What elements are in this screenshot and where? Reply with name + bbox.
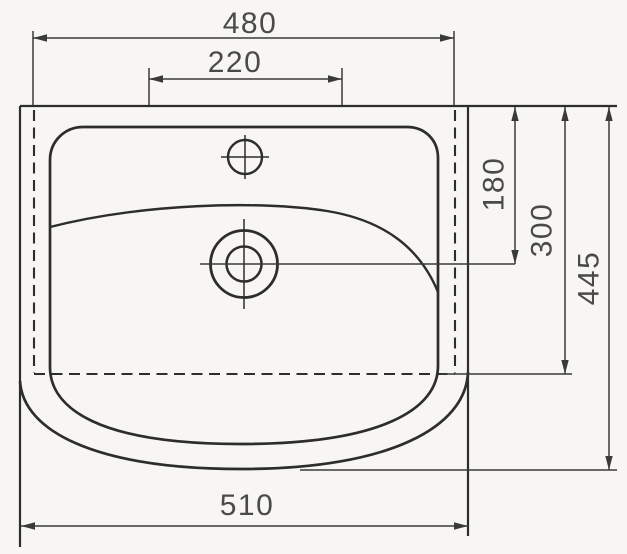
dim-300-arrow-top (561, 107, 568, 121)
dim-180-label: 180 (478, 157, 511, 212)
dim-220-arrow-right (328, 75, 342, 82)
dim-220-arrow-left (149, 75, 163, 82)
dim-180-arrow-top (511, 107, 518, 121)
dim-445-arrow-bottom (605, 456, 612, 470)
dim-300-arrow-bottom (561, 360, 568, 374)
dim-445-label: 445 (573, 251, 606, 306)
dim-510-label: 510 (220, 489, 275, 522)
dim-510-arrow-right (454, 522, 468, 529)
dim-480-arrow-right (440, 34, 454, 41)
dim-220-label: 220 (208, 46, 263, 79)
dim-180-arrow-bottom (511, 250, 518, 264)
dim-300-label: 300 (526, 203, 559, 258)
dim-445-arrow-top (605, 107, 612, 121)
technical-drawing-canvas: 480 220 510 180 300 445 (0, 0, 627, 554)
sink-front-outer-curve (20, 372, 468, 469)
sink-outline (20, 106, 617, 547)
dim-480-arrow-left (33, 34, 47, 41)
washbasin-technical-drawing: 480 220 510 180 300 445 (0, 0, 627, 554)
faucet-hole (221, 135, 269, 179)
dim-510-arrow-left (21, 522, 35, 529)
dim-480-label: 480 (223, 7, 278, 40)
